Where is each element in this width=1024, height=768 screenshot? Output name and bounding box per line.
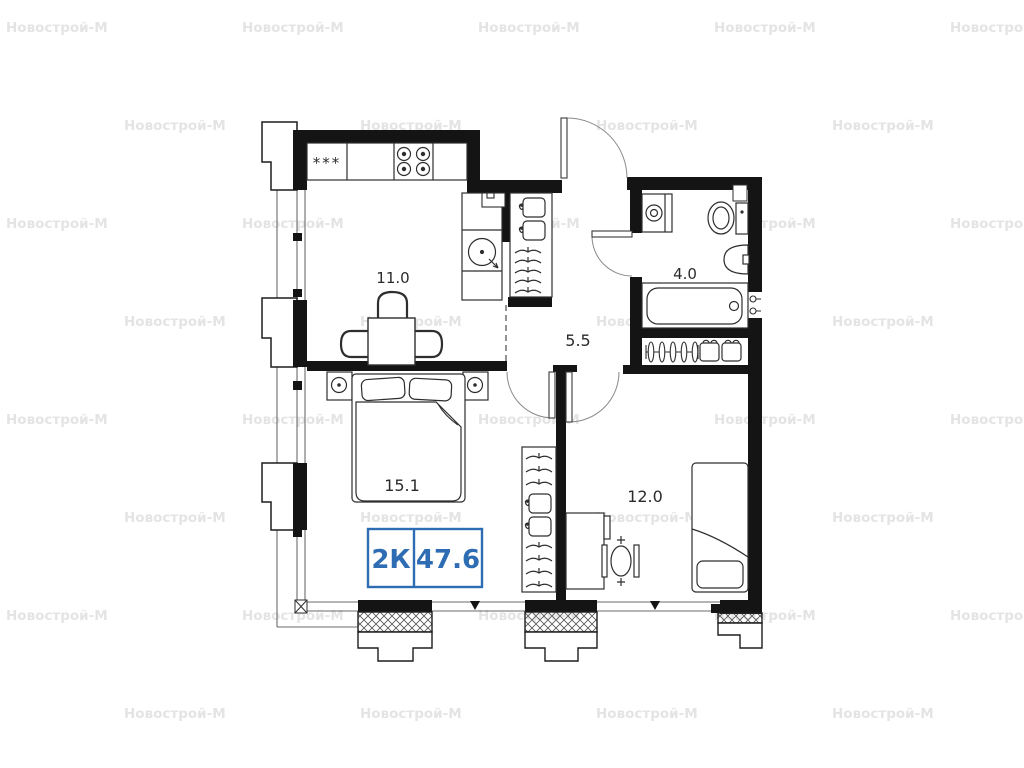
room-door bbox=[566, 372, 619, 422]
hall-wardrobe-icon bbox=[510, 193, 552, 297]
facade-pilasters-left bbox=[262, 122, 297, 530]
bathroom-door bbox=[592, 231, 632, 276]
wall-niche-behind-toilet bbox=[733, 185, 747, 201]
office-chair-icon bbox=[602, 536, 639, 586]
vent-shaft bbox=[482, 193, 505, 207]
floorplan-image: Новострой-МНовострой-МНовострой-МНовостр… bbox=[0, 0, 1024, 768]
bathtub-icon bbox=[642, 283, 748, 328]
badge-rooms-label: 2К bbox=[371, 545, 410, 575]
washing-machine-icon bbox=[642, 194, 672, 232]
facade-pilasters-bottom bbox=[358, 612, 762, 661]
laundry-basket-icon bbox=[700, 340, 741, 361]
bathroom-area-label: 4.0 bbox=[673, 265, 697, 283]
single-bed-icon bbox=[692, 463, 748, 592]
bedroom-area-label: 15.1 bbox=[384, 476, 420, 495]
floorplan-svg: *** bbox=[0, 0, 1024, 768]
fridge-icon: *** bbox=[313, 154, 342, 172]
toilet-icon bbox=[708, 202, 748, 234]
kitchen-area-label: 11.0 bbox=[376, 269, 409, 287]
room-area-label: 12.0 bbox=[627, 487, 663, 506]
bedroom-door bbox=[507, 372, 555, 418]
dining-table-icon bbox=[341, 292, 442, 365]
bathroom-sink-icon bbox=[724, 245, 749, 274]
entrance-door bbox=[561, 118, 627, 178]
towel-radiator-icon bbox=[646, 342, 698, 362]
window-corner-mark bbox=[295, 600, 307, 613]
hallway-area-label: 5.5 bbox=[565, 331, 590, 350]
total-badge: 2К 47.6 bbox=[368, 529, 482, 587]
badge-area-label: 47.6 bbox=[416, 545, 480, 575]
bath-mixer-icon bbox=[748, 292, 762, 318]
bedroom-wardrobe-icon bbox=[522, 447, 556, 592]
kitchen-sink-counter bbox=[462, 193, 502, 300]
